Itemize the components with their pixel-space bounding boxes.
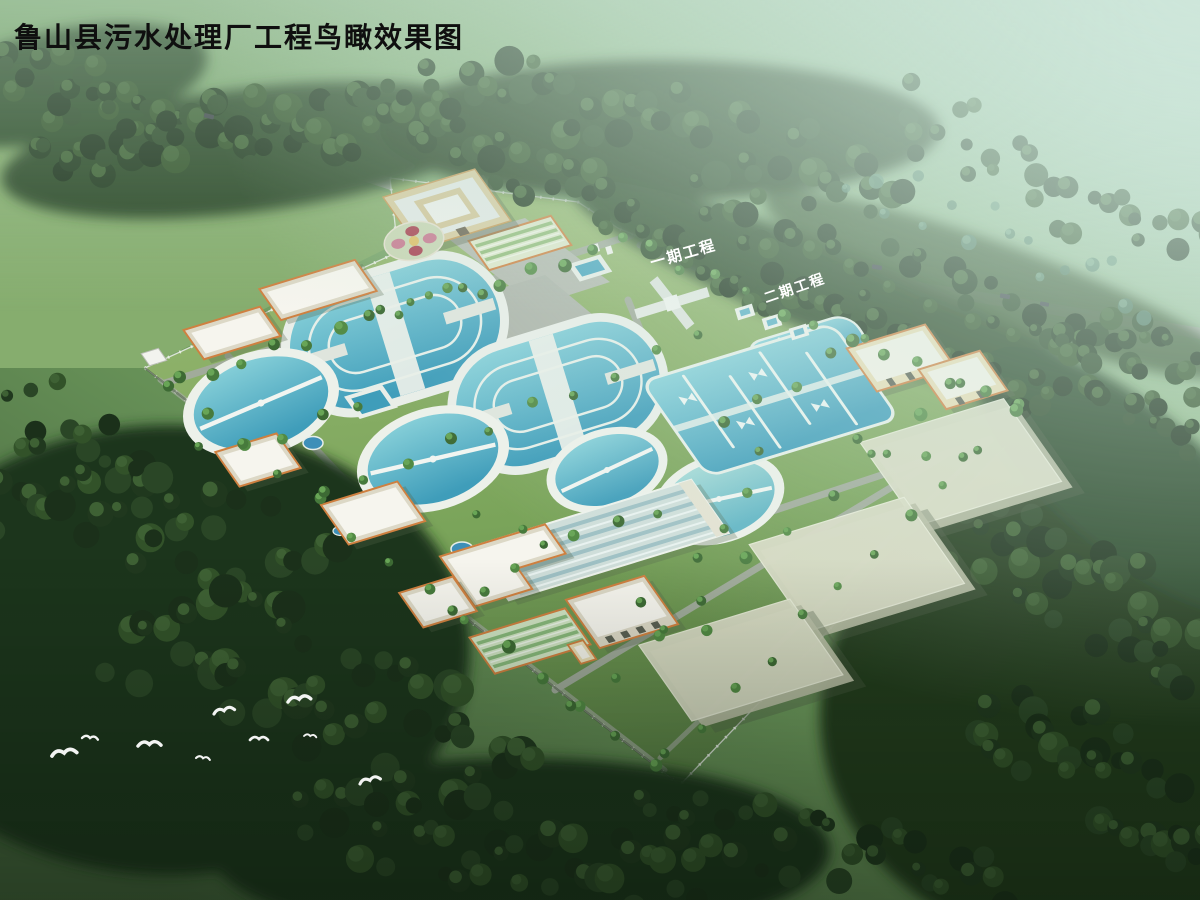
- bottom-vignette: [0, 0, 1200, 900]
- aerial-rendering: 一期工程 二期工程 鲁山县污水处理厂工程鸟瞰效果图: [0, 0, 1200, 900]
- scene-canvas: 一期工程 二期工程: [0, 0, 1200, 900]
- page-title: 鲁山县污水处理厂工程鸟瞰效果图: [14, 16, 464, 56]
